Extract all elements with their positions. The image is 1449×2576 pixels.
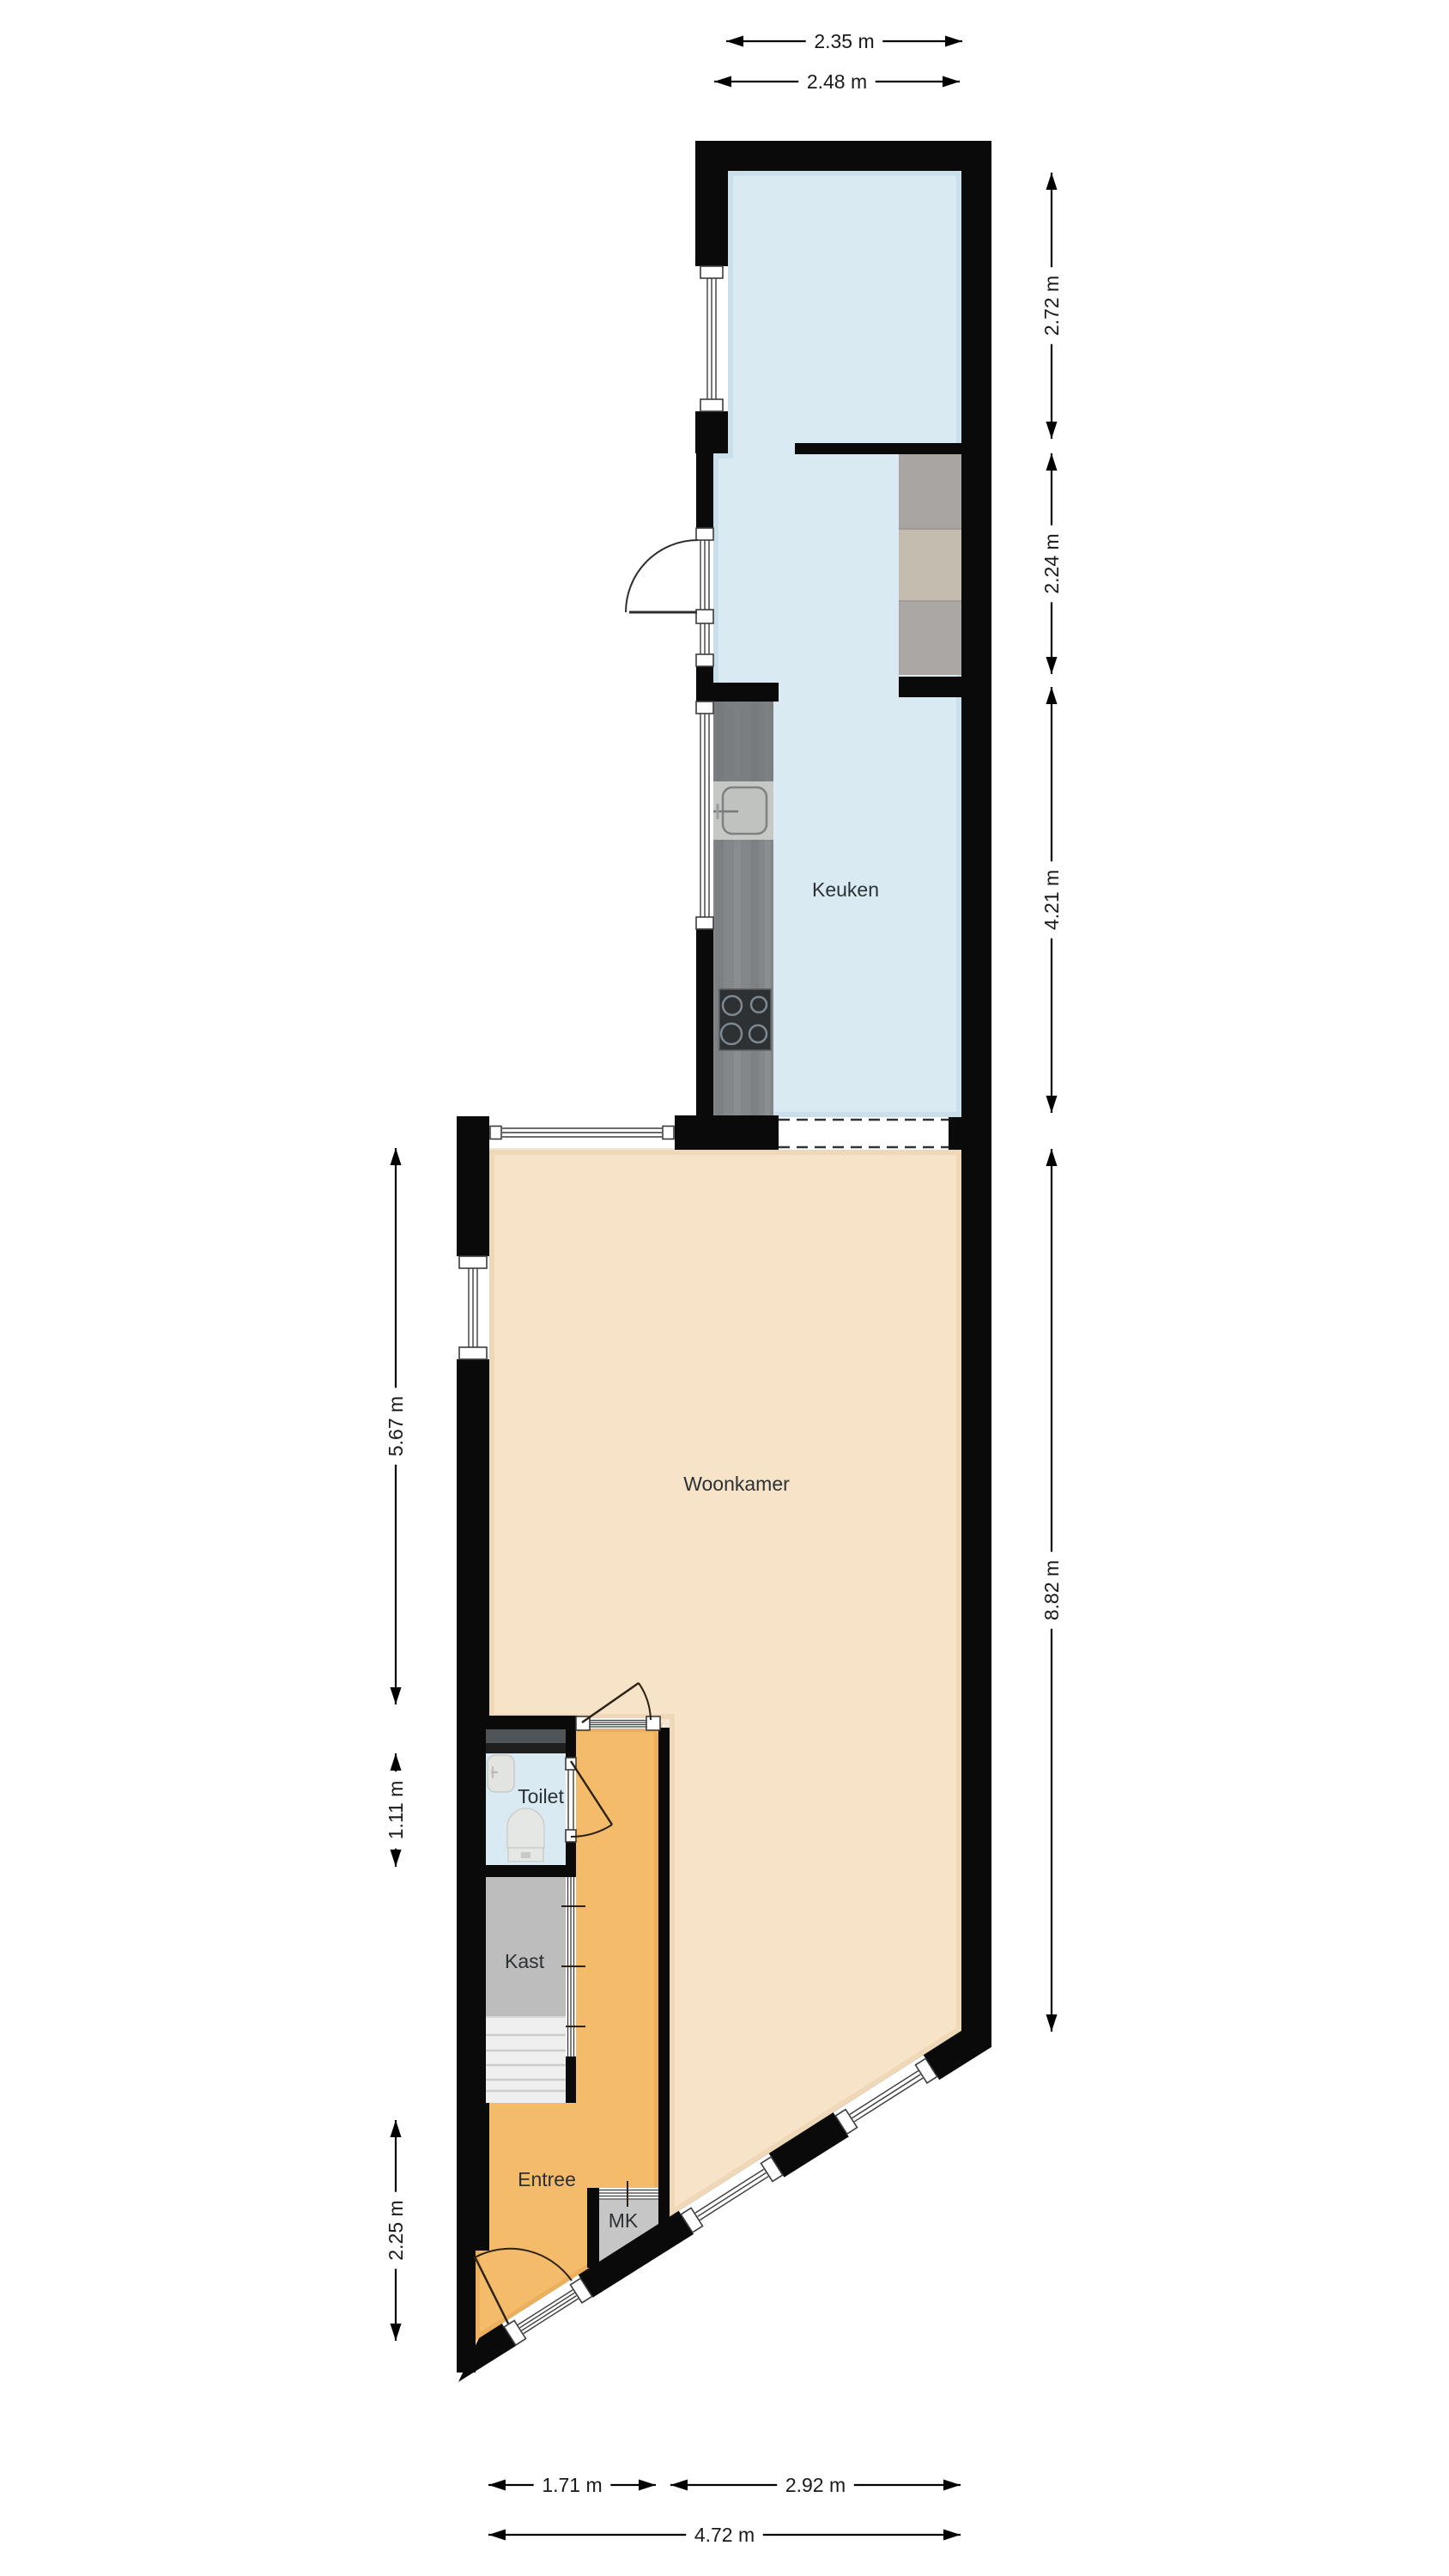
svg-text:2.72 m: 2.72 m [1040, 276, 1063, 336]
svg-text:2.35 m: 2.35 m [814, 30, 874, 52]
svg-text:Keuken: Keuken [812, 878, 879, 901]
svg-text:4.72 m: 4.72 m [694, 2524, 755, 2546]
svg-text:1.71 m: 1.71 m [542, 2474, 602, 2496]
svg-text:Kast: Kast [505, 1950, 545, 1972]
svg-text:5.67 m: 5.67 m [385, 1396, 407, 1456]
svg-text:8.82 m: 8.82 m [1040, 1560, 1063, 1620]
svg-text:2.48 m: 2.48 m [807, 70, 867, 93]
svg-text:Entree: Entree [518, 2168, 576, 2190]
svg-text:2.25 m: 2.25 m [385, 2200, 407, 2260]
svg-text:2.92 m: 2.92 m [785, 2474, 846, 2496]
svg-text:1.11 m: 1.11 m [385, 1781, 407, 1840]
svg-text:Woonkamer: Woonkamer [683, 1473, 790, 1495]
svg-text:4.21 m: 4.21 m [1040, 870, 1063, 930]
svg-text:2.24 m: 2.24 m [1040, 533, 1063, 593]
svg-text:MK: MK [609, 2209, 639, 2232]
svg-text:Toilet: Toilet [518, 1785, 564, 1807]
